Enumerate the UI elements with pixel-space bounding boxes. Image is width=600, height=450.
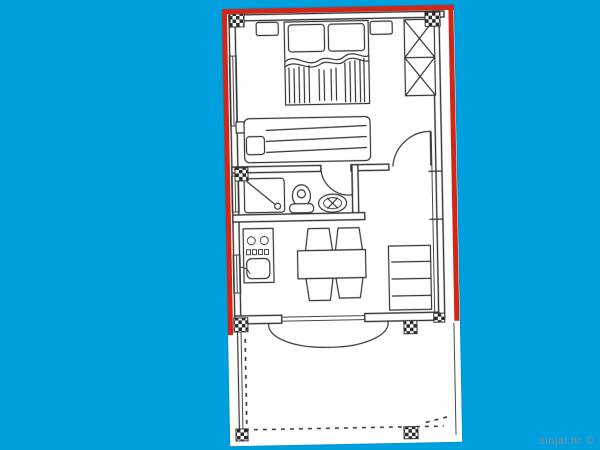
wardrobe [404, 19, 435, 96]
double-bed [284, 20, 370, 105]
kitchen-sink [247, 258, 270, 278]
nightstand-left [256, 22, 278, 35]
chair [305, 228, 332, 251]
shower [244, 178, 285, 213]
sofa-daybed [236, 116, 371, 163]
wash-basin [318, 194, 346, 213]
shelf-cabinet [388, 245, 431, 310]
nightstand-right [370, 21, 392, 34]
chair [306, 278, 333, 301]
kitchen-counter [240, 228, 274, 283]
chair [335, 228, 362, 251]
chair [336, 278, 363, 299]
floor-plan-drawing [222, 5, 462, 446]
dining-table [297, 250, 366, 279]
floor-plan [222, 5, 462, 446]
page-background: sinjal.hr © [0, 0, 600, 450]
watermark: sinjal.hr © [539, 435, 594, 447]
